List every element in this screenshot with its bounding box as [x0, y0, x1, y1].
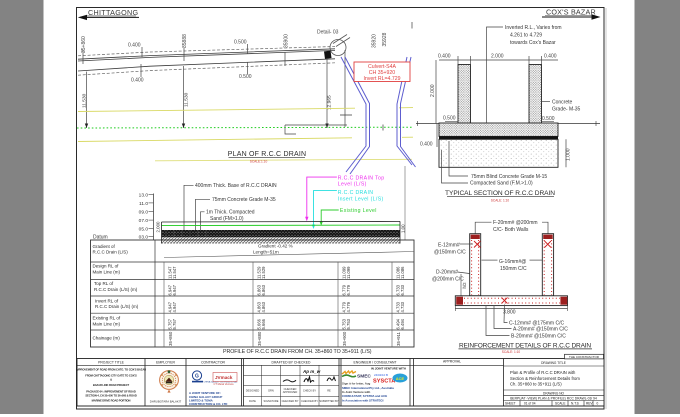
svg-text:Ap m_w: Ap m_w	[302, 369, 321, 374]
svg-text:12.965: 12.965	[327, 95, 333, 110]
svg-text:BAZAR LINK ROAD PROJECT: BAZAR LINK ROAD PROJECT	[93, 383, 130, 387]
svg-text:SCALE: 1:10: SCALE: 1:10	[491, 199, 510, 203]
svg-text:B-20mm# @150mm C/C: B-20mm# @150mm C/C	[511, 334, 566, 340]
svg-text:IMPROVEMENT OF ROAD FROM CHTG.: IMPROVEMENT OF ROAD FROM CHTG. TO COX'S …	[76, 368, 146, 372]
svg-text:SHEET: SHEET	[505, 402, 516, 406]
svg-text:Detail- 03: Detail- 03	[317, 30, 339, 36]
svg-text:G-16mm#@: G-16mm#@	[499, 259, 526, 265]
svg-text:N.T.S: N.T.S	[571, 402, 579, 406]
svg-text:35+880: 35+880	[257, 331, 262, 346]
svg-text:6.733: 6.733	[400, 284, 405, 295]
svg-text:DHRUBOTARA BALAKIT: DHRUBOTARA BALAKIT	[150, 400, 182, 404]
svg-text:0.400: 0.400	[128, 43, 141, 49]
svg-text:CONSTRUCTION & CO. LTD: CONSTRUCTION & CO. LTD	[189, 402, 227, 406]
svg-text:CT Metal Venture: CT Metal Venture	[214, 382, 235, 386]
svg-text:Inverted R.L., Varies from: Inverted R.L., Varies from	[505, 25, 562, 31]
svg-text:13.0: 13.0	[139, 192, 149, 198]
svg-text:ENGINEER / CONSULTANT: ENGINEER / CONSULTANT	[353, 361, 396, 365]
svg-text:DATE: DATE	[249, 399, 256, 403]
svg-text:35+911: 35+911	[396, 331, 401, 345]
svg-text:Chainage (m): Chainage (m)	[93, 336, 121, 341]
svg-text:SCALE: 1:10: SCALE: 1:10	[502, 350, 521, 354]
svg-text:05.0: 05.0	[139, 227, 149, 233]
svg-text:24/02/10 B: 24/02/10 B	[374, 373, 388, 377]
svg-text:Insert Level (L/S): Insert Level (L/S)	[338, 196, 384, 202]
svg-text:0.500: 0.500	[542, 116, 555, 122]
svg-text:DRAWING NO: DRAWING NO	[543, 391, 564, 395]
svg-text:@150mm C/C: @150mm C/C	[434, 250, 466, 256]
svg-text:1m Thick. Compacted: 1m Thick. Compacted	[206, 210, 255, 216]
svg-text:0.500: 0.500	[234, 40, 247, 46]
svg-text:01 of 04: 01 of 04	[524, 402, 536, 406]
svg-text:E-12mm#: E-12mm#	[438, 243, 460, 249]
svg-text:4.947: 4.947	[172, 301, 177, 312]
svg-text:0.500: 0.500	[239, 74, 252, 80]
svg-text:PLAN OF R.C.C DRAIN: PLAN OF R.C.C DRAIN	[228, 151, 306, 158]
svg-text:THE CONSTRACTOR: THE CONSTRACTOR	[569, 355, 600, 359]
svg-text:Existing Level: Existing Level	[340, 208, 377, 214]
svg-text:D-20mm#: D-20mm#	[436, 270, 458, 276]
svg-text:RE: RE	[327, 389, 331, 393]
svg-text:CONTRACTOR: CONTRACTOR	[201, 361, 225, 365]
svg-text:75mm Blind Concrete Grade M-15: 75mm Blind Concrete Grade M-15	[471, 174, 547, 180]
svg-text:400mm Thick. Base of R.C.C DRA: 400mm Thick. Base of R.C.C DRAIN	[195, 183, 277, 189]
svg-text:Length=51m: Length=51m	[253, 250, 279, 255]
svg-text:5.666: 5.666	[261, 318, 266, 329]
svg-text:F-20mm# @200mm: F-20mm# @200mm	[493, 220, 538, 226]
svg-text:Sand (FM>1.0): Sand (FM>1.0)	[210, 216, 244, 222]
svg-text:CHECKED BY: CHECKED BY	[282, 399, 299, 403]
svg-text:R.C.C DRAIN: R.C.C DRAIN	[338, 190, 374, 196]
svg-text:PACKAGE-04 : IMPROVEMENT OF R: PACKAGE-04 : IMPROVEMENT OF ROAD	[86, 390, 136, 394]
svg-text:150mm C/C: 150mm C/C	[500, 266, 527, 272]
svg-text:35920: 35920	[372, 34, 378, 48]
svg-text:Top RL of: Top RL of	[94, 281, 114, 286]
svg-text:2.000: 2.000	[156, 221, 161, 233]
svg-text:CHECKED BY: CHECKED BY	[301, 399, 318, 403]
svg-text:6.863: 6.863	[261, 284, 266, 295]
svg-text:4.261 to 4.729: 4.261 to 4.729	[510, 33, 542, 39]
svg-text:In Association with STRATEGI: In Association with STRATEGI	[342, 398, 384, 402]
svg-text:Ch. 35+860 to 35+911 (L/S): Ch. 35+860 to 35+911 (L/S)	[510, 382, 562, 387]
svg-text:5.757: 5.757	[172, 318, 177, 329]
svg-text:Main Line (m): Main Line (m)	[93, 269, 121, 274]
svg-text:3.800: 3.800	[503, 310, 516, 316]
svg-text:0.400: 0.400	[438, 54, 451, 60]
svg-text:BERPUAT -VIEW( PLAN & PROFILE): BERPUAT -VIEW( PLAN & PROFILE) RCC DRAWL…	[510, 396, 597, 400]
svg-text:0.400: 0.400	[544, 54, 557, 60]
svg-text:DRAFTED BY CHECKED: DRAFTED BY CHECKED	[272, 361, 311, 365]
svg-text:Gradient -0.42 %: Gradient -0.42 %	[258, 244, 293, 249]
svg-text:35888: 35888	[182, 34, 188, 48]
svg-text:11.099: 11.099	[346, 266, 351, 279]
svg-text:PROFILE OF R.C.C DRAIN FROM: PROFILE OF R.C.C DRAIN FROM CH. 35+860 T…	[223, 349, 372, 355]
svg-text:03.0: 03.0	[139, 234, 149, 240]
svg-text:Section & Reinforcement Detail: Section & Reinforcement Details from	[510, 376, 580, 381]
svg-text:DESIGNED: DESIGNED	[246, 389, 260, 393]
svg-text:R.C.C Drain (L/S) (m): R.C.C Drain (L/S) (m)	[94, 287, 138, 292]
svg-text:0: 0	[597, 402, 599, 406]
svg-text:Level (L/S): Level (L/S)	[338, 181, 367, 187]
svg-text:75mm Concrete Grade M-35: 75mm Concrete Grade M-35	[212, 197, 276, 203]
svg-text:h/2: h/2	[462, 282, 467, 289]
svg-text:ACE: ACE	[396, 376, 405, 381]
svg-text:C/C- Both Walls: C/C- Both Walls	[493, 227, 529, 233]
svg-text:G: G	[195, 374, 199, 380]
svg-text:Invert RL of: Invert RL of	[95, 298, 119, 303]
svg-text:07.0: 07.0	[139, 218, 149, 224]
svg-text:Compacted Sand (F.M.>1.0): Compacted Sand (F.M.>1.0)	[470, 181, 533, 187]
svg-text:SYSCTA: SYSCTA	[373, 379, 395, 385]
svg-text:CHECK BY: CHECK BY	[303, 389, 317, 393]
svg-text:6.494: 6.494	[400, 318, 405, 329]
svg-text:Sign it for letter, Aug: Sign it for letter, Aug	[342, 382, 371, 386]
svg-text:1.00: 1.00	[401, 224, 406, 233]
svg-text:R.C.C Drain (L/S) (m): R.C.C Drain (L/S) (m)	[95, 304, 139, 309]
svg-text:4.863: 4.863	[261, 301, 266, 312]
svg-text:Invert RL=4.729: Invert RL=4.729	[363, 76, 400, 82]
svg-text:Grade- M-35: Grade- M-35	[552, 107, 581, 113]
svg-text:11.086: 11.086	[400, 266, 405, 279]
svg-text:0.400: 0.400	[131, 78, 144, 84]
svg-text:PROJECT TITLE: PROJECT TITLE	[98, 361, 125, 365]
svg-text:REV: REV	[586, 402, 593, 406]
svg-text:towards Cox's Bazar: towards Cox's Bazar	[510, 40, 556, 46]
svg-text:Existing RL of: Existing RL of	[93, 315, 121, 320]
svg-text:35+860: 35+860	[168, 331, 173, 346]
svg-text:REINFORCEMENT DETAILS OF R.C.C: REINFORCEMENT DETAILS OF R.C.C DRAIN	[459, 342, 591, 349]
svg-text:APPROVAL: APPROVAL	[443, 360, 461, 364]
svg-text:SCALE:1:10: SCALE:1:10	[250, 159, 268, 163]
svg-text:4.779: 4.779	[346, 301, 351, 312]
svg-text:DRN: DRN	[268, 389, 274, 393]
svg-text:2.000: 2.000	[430, 84, 436, 97]
svg-text:&: &	[110, 378, 112, 382]
svg-text:FROM CHITTAGONG CITY GATE TO C: FROM CHITTAGONG CITY GATE TO COX'S	[85, 374, 137, 378]
svg-text:SMEC: SMEC	[357, 374, 371, 380]
svg-text:SECTION-4, CH 35+000 TO 36+000: SECTION-4, CH 35+000 TO 36+000 & ROAD	[85, 394, 137, 398]
svg-text:2.000: 2.000	[491, 54, 504, 60]
svg-text:Gradient of: Gradient of	[93, 244, 116, 249]
svg-text:CHITTAGONG: CHITTAGONG	[88, 8, 138, 17]
svg-text:11.0: 11.0	[139, 201, 148, 207]
svg-text:Design RL of: Design RL of	[93, 264, 120, 269]
svg-text:@200mm C/C: @200mm C/C	[432, 277, 464, 283]
svg-text:6.779: 6.779	[346, 284, 351, 295]
svg-text:SIGNATURE: SIGNATURE	[264, 399, 279, 403]
svg-text:SUBMITTED BY: SUBMITTED BY	[319, 399, 338, 403]
svg-text:11.547: 11.547	[172, 266, 177, 279]
svg-text:COX'S BAZAR: COX'S BAZAR	[546, 7, 596, 16]
svg-text:A-20mm# @150mm C/C: A-20mm# @150mm C/C	[513, 327, 568, 333]
svg-text:09.0: 09.0	[139, 210, 149, 216]
svg-text:Main Line (m): Main Line (m)	[93, 322, 121, 327]
svg-text:0.400: 0.400	[420, 142, 433, 148]
svg-text:35+900: 35+900	[342, 331, 347, 346]
svg-text:0.500: 0.500	[443, 116, 456, 122]
svg-text:35900: 35900	[284, 34, 290, 48]
svg-text:SCALE: SCALE	[555, 402, 565, 406]
svg-text:Concrete: Concrete	[552, 100, 573, 106]
svg-text:6.947: 6.947	[172, 284, 177, 295]
svg-text:11.530: 11.530	[82, 93, 88, 108]
svg-text:EMPLOYER: EMPLOYER	[156, 361, 175, 365]
svg-text:11.530: 11.530	[184, 92, 190, 107]
svg-text:JVmack: JVmack	[215, 375, 233, 380]
svg-text:35928: 35928	[382, 32, 388, 46]
svg-text:APPROVED: APPROVED	[283, 390, 298, 394]
svg-text:MARINE DRIVE ROAD PORTION: MARINE DRIVE ROAD PORTION	[92, 399, 131, 403]
svg-text:Plan & Profile of R.C.C DRAIN: Plan & Profile of R.C.C DRAIN with	[510, 370, 576, 375]
svg-text:4.733: 4.733	[400, 301, 405, 312]
svg-text:35+860: 35+860	[81, 36, 87, 53]
svg-text:1.000: 1.000	[566, 148, 572, 161]
svg-text:11.529: 11.529	[261, 266, 266, 279]
svg-text:R.C.C Drain (L/S): R.C.C Drain (L/S)	[93, 250, 129, 255]
svg-text:IN JOINT VENTURE WITH: IN JOINT VENTURE WITH	[371, 367, 406, 371]
svg-text:5.753: 5.753	[346, 318, 351, 329]
svg-text:DRAWING TITLE: DRAWING TITLE	[541, 361, 566, 365]
